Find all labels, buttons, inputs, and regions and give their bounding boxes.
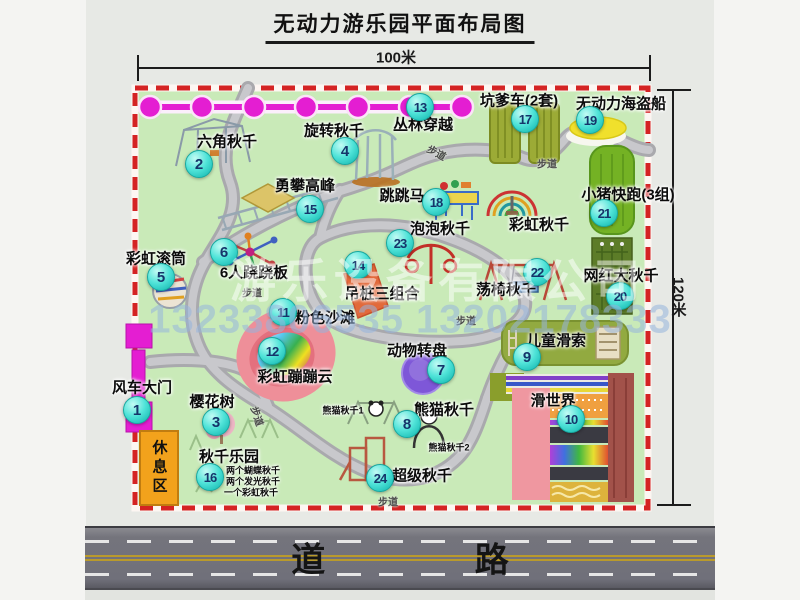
marker-6: 6 — [210, 238, 238, 266]
road-label: 道 路 — [221, 533, 578, 582]
label-12: 彩虹蹦蹦云 — [257, 366, 332, 387]
marker-11: 11 — [269, 298, 297, 326]
marker-13: 13 — [406, 93, 434, 121]
marker-4: 4 — [331, 137, 359, 165]
marker-16: 16 — [196, 463, 224, 491]
marker-14: 14 — [344, 251, 372, 279]
label-8: 熊猫秋千 — [414, 399, 474, 420]
extra-label-1: 熊猫秋千1 — [322, 404, 363, 417]
road: 道 路 — [85, 526, 715, 590]
park-plan: 无动力游乐园平面布局图 100米 120米 休息区 1风车大门2六角秋千3樱花树… — [0, 0, 800, 600]
marker-8: 8 — [393, 410, 421, 438]
path-label-0: 步道 — [242, 285, 262, 300]
marker-1: 1 — [123, 396, 151, 424]
marker-2: 2 — [185, 150, 213, 178]
marker-9: 9 — [513, 343, 541, 371]
path-label-5: 步道 — [378, 494, 398, 509]
label-11: 粉色沙滩 — [295, 307, 355, 328]
marker-24: 24 — [366, 464, 394, 492]
height-dimension-label: 120米 — [668, 277, 689, 317]
marker-22: 22 — [523, 258, 551, 286]
marker-12: 12 — [258, 337, 286, 365]
marker-23: 23 — [386, 229, 414, 257]
marker-3: 3 — [202, 408, 230, 436]
label-23: 泡泡秋千 — [410, 218, 470, 239]
label-1: 风车大门 — [112, 377, 172, 398]
label-6: 6人跷跷板 — [220, 262, 288, 283]
label-15: 勇攀高峰 — [275, 175, 335, 196]
marker-20: 20 — [606, 282, 634, 310]
page-title: 无动力游乐园平面布局图 — [266, 8, 535, 44]
extra-label-0: 彩虹秋千 — [509, 214, 569, 235]
path-label-2: 步道 — [537, 156, 557, 171]
extra-label-2: 熊猫秋千2 — [428, 441, 469, 454]
width-dimension-label: 100米 — [376, 47, 416, 68]
marker-17: 17 — [511, 105, 539, 133]
label-18: 跳跳马 — [379, 185, 424, 206]
path-label-3: 步道 — [456, 313, 476, 328]
marker-10: 10 — [557, 405, 585, 433]
marker-15: 15 — [296, 195, 324, 223]
marker-18: 18 — [422, 188, 450, 216]
marker-5: 5 — [147, 263, 175, 291]
label-2: 六角秋千 — [197, 131, 257, 152]
rest-area-label: 休息区 — [149, 440, 170, 497]
label-24: 超级秋千 — [392, 465, 452, 486]
marker-19: 19 — [576, 106, 604, 134]
label-14: 吊桩三组合 — [344, 283, 419, 304]
marker-7: 7 — [427, 356, 455, 384]
label-4: 旋转秋千 — [304, 120, 364, 141]
marker-21: 21 — [590, 199, 618, 227]
extra-label-5: 一个彩虹秋千 — [224, 486, 278, 499]
